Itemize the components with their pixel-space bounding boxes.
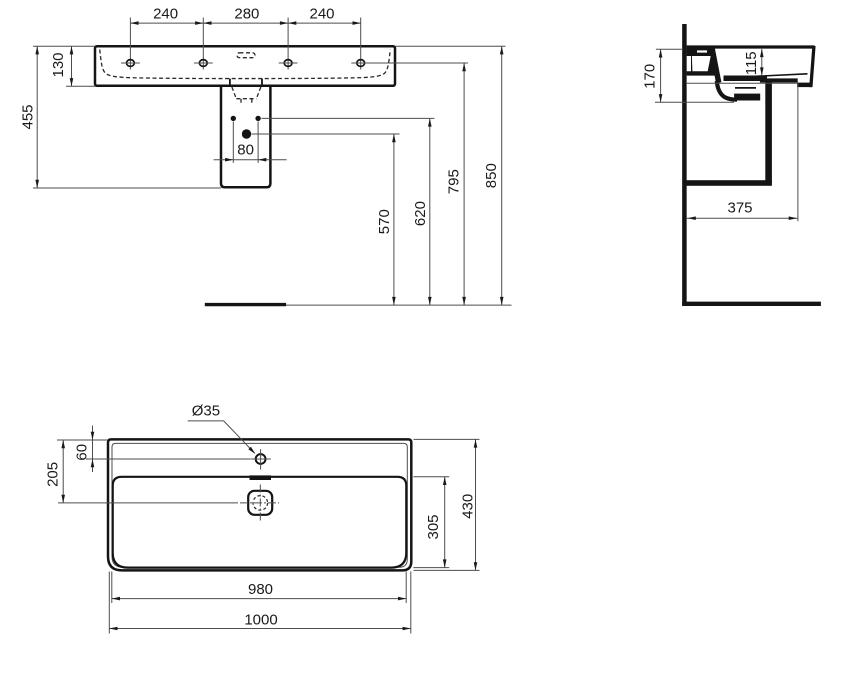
svg-text:130: 130 bbox=[50, 52, 67, 77]
svg-text:240: 240 bbox=[153, 6, 178, 23]
svg-text:570: 570 bbox=[376, 209, 393, 234]
svg-text:305: 305 bbox=[425, 514, 442, 539]
svg-text:850: 850 bbox=[483, 163, 500, 188]
svg-text:60: 60 bbox=[74, 444, 91, 461]
svg-text:795: 795 bbox=[445, 169, 462, 194]
svg-text:115: 115 bbox=[743, 51, 760, 75]
svg-text:280: 280 bbox=[234, 6, 259, 23]
svg-text:1000: 1000 bbox=[244, 611, 277, 628]
svg-text:205: 205 bbox=[44, 462, 61, 487]
svg-text:375: 375 bbox=[727, 200, 752, 217]
svg-text:240: 240 bbox=[309, 6, 334, 23]
svg-text:430: 430 bbox=[459, 494, 476, 519]
svg-text:620: 620 bbox=[412, 201, 429, 226]
svg-text:80: 80 bbox=[237, 141, 254, 158]
svg-text:980: 980 bbox=[248, 581, 273, 598]
svg-text:455: 455 bbox=[19, 104, 36, 129]
svg-text:170: 170 bbox=[642, 64, 659, 89]
svg-text:Ø35: Ø35 bbox=[192, 402, 220, 419]
